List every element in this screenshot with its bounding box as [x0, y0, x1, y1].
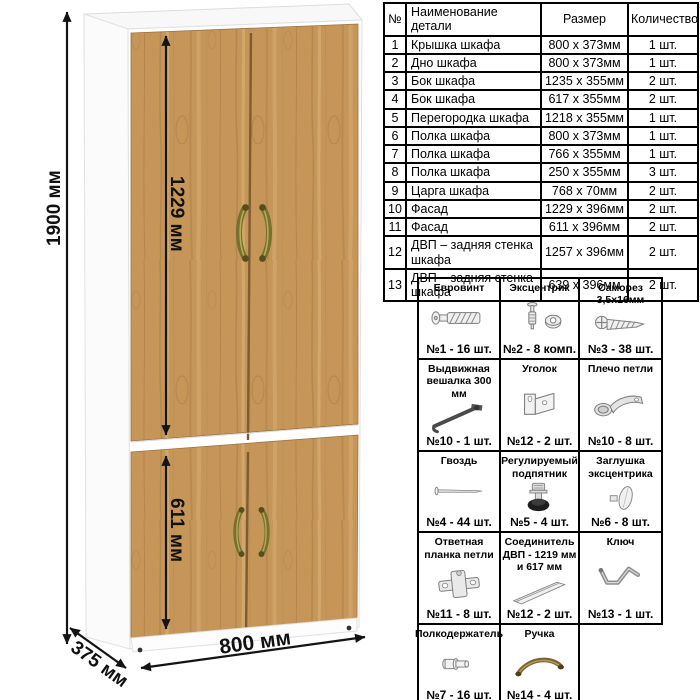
parts-col-header-0: № [384, 3, 406, 36]
hardware-item-title: Гвоздь [441, 455, 478, 467]
parts-cell-name: Фасад [406, 200, 541, 218]
parts-cell-name: Фасад [406, 218, 541, 236]
parts-cell-name: Бок шкафа [406, 90, 541, 108]
hardware-row: Евровинт№1 - 16 шт.Эксцентрик№2 - 8 комп… [418, 278, 662, 359]
hardware-item-count: №5 - 4 шт. [510, 515, 569, 529]
hardware-item-title: Соединитель ДВП - 1219 мм и 617 мм [502, 536, 577, 573]
parts-cell-num: 3 [384, 72, 406, 90]
hardware-row: Гвоздь№4 - 44 шт.Регулируемый подпятник№… [418, 451, 662, 532]
adjustable-foot-icon [508, 481, 572, 515]
parts-cell-qty: 2 шт. [628, 236, 698, 269]
parts-cell-num: 4 [384, 90, 406, 108]
parts-cell-name: Полка шкафа [406, 163, 541, 181]
parts-table: №Наименование деталиРазмерКоличество 1Кр… [383, 2, 699, 302]
parts-cell-size: 611 x 396мм [541, 218, 628, 236]
parts-cell-size: 1229 x 396мм [541, 200, 628, 218]
assembly-sheet: 1900 мм 1229 мм 611 мм 800 мм 375 мм №На… [0, 0, 700, 700]
parts-cell-qty: 3 шт. [628, 163, 698, 181]
hardware-empty-cell [579, 624, 662, 700]
parts-col-header-1: Наименование детали [406, 3, 541, 36]
parts-cell-size: 766 x 355мм [541, 145, 628, 163]
parts-cell-size: 617 x 355мм [541, 90, 628, 108]
parts-cell-qty: 1 шт. [628, 54, 698, 72]
table-row: 7Полка шкафа766 x 355мм1 шт. [384, 145, 698, 163]
hardware-item-count: №3 - 38 шт. [588, 342, 654, 356]
parts-cell-num: 13 [384, 269, 406, 302]
hardware-item-title: Ручка [524, 628, 554, 640]
parts-cell-size: 768 x 70мм [541, 182, 628, 200]
corner-bracket-icon [508, 388, 572, 422]
hardware-grid: Евровинт№1 - 16 шт.Эксцентрик№2 - 8 комп… [417, 277, 663, 700]
cam-cap-icon [589, 481, 653, 515]
pullout-hanger-icon [427, 400, 491, 434]
parts-table-body: 1Крышка шкафа800 x 373мм1 шт.2Дно шкафа8… [384, 36, 698, 302]
hardware-item-title: Регулируемый подпятник [501, 455, 578, 480]
parts-cell-qty: 2 шт. [628, 218, 698, 236]
foot-right [347, 626, 352, 631]
hardware-row: Выдвижная вешалка 300 мм№10 - 1 шт.Уголо… [418, 359, 662, 451]
parts-cell-name: Царга шкафа [406, 182, 541, 200]
hardware-item: Гвоздь№4 - 44 шт. [418, 451, 500, 532]
table-row: 1Крышка шкафа800 x 373мм1 шт. [384, 36, 698, 54]
handle-icon [508, 647, 572, 681]
parts-cell-size: 800 x 373мм [541, 54, 628, 72]
hardware-item-count: №10 - 8 шт. [588, 434, 654, 448]
hardware-item-title: Ответная планка петли [420, 536, 498, 561]
hardware-row: Полкодержатель№7 - 16 шт.Ручка№14 - 4 шт… [418, 624, 662, 700]
hardware-item-count: №14 - 4 шт. [507, 688, 573, 700]
hardware-item-count: №4 - 44 шт. [426, 515, 492, 529]
table-row: 6Полка шкафа800 x 373мм1 шт. [384, 127, 698, 145]
parts-col-header-2: Размер [541, 3, 628, 36]
table-row: 5Перегородка шкафа1218 x 355мм1 шт. [384, 109, 698, 127]
parts-cell-num: 9 [384, 182, 406, 200]
hardware-item: Соединитель ДВП - 1219 мм и 617 мм№12 - … [500, 532, 579, 624]
hardware-grid-body: Евровинт№1 - 16 шт.Эксцентрик№2 - 8 комп… [418, 278, 662, 700]
parts-cell-size: 250 x 355мм [541, 163, 628, 181]
foot-left [138, 648, 143, 653]
parts-table-header-row: №Наименование деталиРазмерКоличество [384, 3, 698, 36]
wardrobe-diagram: 1900 мм 1229 мм 611 мм 800 мм 375 мм [0, 0, 383, 700]
hardware-item-title: Ключ [607, 536, 635, 548]
parts-cell-name: Полка шкафа [406, 127, 541, 145]
hardware-item: Эксцентрик№2 - 8 комп. [500, 278, 579, 359]
parts-cell-size: 1218 x 355мм [541, 109, 628, 127]
hardware-item-count: №12 - 2 шт. [507, 607, 573, 621]
parts-cell-qty: 2 шт. [628, 72, 698, 90]
hardware-item-count: №2 - 8 комп. [503, 342, 576, 356]
dim-height-label: 1900 мм [44, 170, 65, 246]
table-row: 10Фасад1229 x 396мм2 шт. [384, 200, 698, 218]
hardware-item: Саморез 3,5x16мм№3 - 38 шт. [579, 278, 662, 359]
parts-cell-num: 7 [384, 145, 406, 163]
confirmat-screw-icon [427, 301, 491, 335]
parts-cell-num: 5 [384, 109, 406, 127]
hardware-item-count: №1 - 16 шт. [426, 342, 492, 356]
parts-cell-name: Бок шкафа [406, 72, 541, 90]
hardware-item-count: №7 - 16 шт. [426, 688, 492, 700]
parts-cell-name: Крышка шкафа [406, 36, 541, 54]
parts-cell-size: 800 x 373мм [541, 36, 628, 54]
hardware-item: Полкодержатель№7 - 16 шт. [418, 624, 500, 700]
hardware-item: Плечо петли№10 - 8 шт. [579, 359, 662, 451]
parts-cell-qty: 2 шт. [628, 182, 698, 200]
hex-key-icon [589, 561, 653, 595]
parts-cell-name: Перегородка шкафа [406, 109, 541, 127]
hinge-arm-icon [589, 388, 653, 422]
hardware-item-count: №6 - 8 шт. [591, 515, 650, 529]
hardware-item-title: Саморез 3,5x16мм [581, 282, 660, 307]
parts-cell-num: 1 [384, 36, 406, 54]
parts-col-header-3: Количество [628, 3, 698, 36]
hardware-row: Ответная планка петли№11 - 8 шт.Соединит… [418, 532, 662, 624]
parts-cell-qty: 1 шт. [628, 127, 698, 145]
hardware-item: Ключ№13 - 1 шт. [579, 532, 662, 624]
parts-cell-qty: 1 шт. [628, 109, 698, 127]
parts-cell-num: 12 [384, 236, 406, 269]
table-row: 4Бок шкафа617 x 355мм2 шт. [384, 90, 698, 108]
hardware-item-title: Эксцентрик [509, 282, 569, 294]
hardware-item: Евровинт№1 - 16 шт. [418, 278, 500, 359]
parts-cell-size: 1257 x 396мм [541, 236, 628, 269]
nail-icon [427, 474, 491, 508]
parts-cell-qty: 1 шт. [628, 36, 698, 54]
hardware-item: Заглушка эксцентрика№6 - 8 шт. [579, 451, 662, 532]
hardware-item-title: Уголок [522, 363, 557, 375]
hardware-item-count: №11 - 8 шт. [427, 607, 492, 621]
shelf-pin-icon [427, 647, 491, 681]
hardware-item-title: Полкодержатель [415, 628, 503, 640]
parts-cell-num: 2 [384, 54, 406, 72]
parts-cell-size: 1235 x 355мм [541, 72, 628, 90]
hardware-item-count: №13 - 1 шт. [588, 607, 654, 621]
hardware-item-title: Выдвижная вешалка 300 мм [420, 363, 498, 400]
wardrobe-side-panel [84, 14, 130, 649]
cam-lock-icon [508, 301, 572, 335]
dim-lower-door-label: 611 мм [166, 498, 187, 562]
table-row: 8Полка шкафа250 x 355мм3 шт. [384, 163, 698, 181]
table-row: 2Дно шкафа800 x 373мм1 шт. [384, 54, 698, 72]
table-row: 12ДВП – задняя стенка шкафа1257 x 396мм2… [384, 236, 698, 269]
parts-cell-name: Дно шкафа [406, 54, 541, 72]
parts-cell-name: Полка шкафа [406, 145, 541, 163]
parts-cell-num: 8 [384, 163, 406, 181]
parts-cell-qty: 2 шт. [628, 90, 698, 108]
table-row: 3Бок шкафа1235 x 355мм2 шт. [384, 72, 698, 90]
table-row: 11Фасад611 x 396мм2 шт. [384, 218, 698, 236]
hdf-connector-icon [508, 573, 572, 607]
hardware-item: Уголок№12 - 2 шт. [500, 359, 579, 451]
parts-cell-qty: 1 шт. [628, 145, 698, 163]
parts-cell-name: ДВП – задняя стенка шкафа [406, 236, 541, 269]
hardware-item-count: №12 - 2 шт. [507, 434, 573, 448]
hardware-item: Регулируемый подпятник№5 - 4 шт. [500, 451, 579, 532]
parts-cell-qty: 2 шт. [628, 200, 698, 218]
screw-icon [589, 307, 653, 341]
parts-cell-size: 800 x 373мм [541, 127, 628, 145]
parts-cell-num: 11 [384, 218, 406, 236]
hardware-item: Выдвижная вешалка 300 мм№10 - 1 шт. [418, 359, 500, 451]
hardware-item-count: №10 - 1 шт. [426, 434, 492, 448]
hardware-item: Ответная планка петли№11 - 8 шт. [418, 532, 500, 624]
dim-upper-door-label: 1229 мм [166, 176, 187, 252]
hinge-plate-icon [427, 567, 491, 601]
hardware-item-title: Заглушка эксцентрика [581, 455, 660, 480]
hardware-item-title: Евровинт [434, 282, 485, 294]
table-row: 9Царга шкафа768 x 70мм2 шт. [384, 182, 698, 200]
parts-cell-num: 6 [384, 127, 406, 145]
hardware-item: Ручка№14 - 4 шт. [500, 624, 579, 700]
parts-cell-num: 10 [384, 200, 406, 218]
hardware-item-title: Плечо петли [588, 363, 653, 375]
